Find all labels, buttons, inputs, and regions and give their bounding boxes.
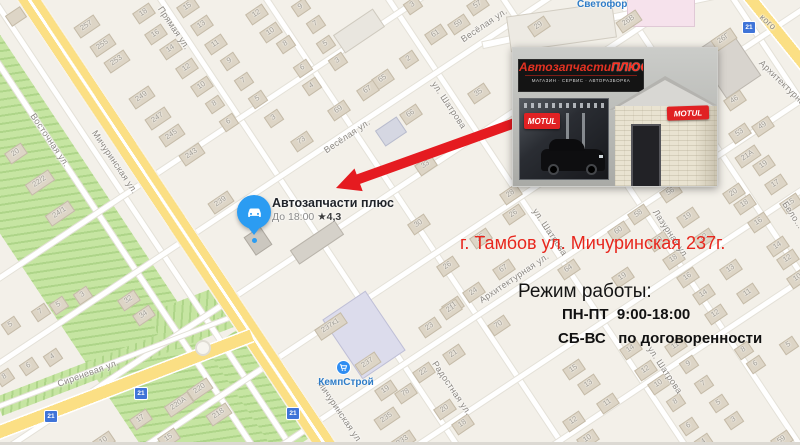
store-sign-title: АвтозапчастиПЛЮС <box>519 60 643 75</box>
brand-logos-row <box>524 103 603 108</box>
store-building <box>609 76 717 186</box>
car-wheel <box>548 164 559 175</box>
sign-title-accent: ПЛЮС <box>611 60 644 74</box>
car-photo <box>541 149 605 171</box>
sign-title-text: Автозапчасти <box>519 60 611 74</box>
car-wheel <box>586 164 597 175</box>
motul-wall-sign: MOTUL <box>667 105 709 120</box>
map-canvas[interactable]: 2572552532492472452432022/224/1181614121… <box>0 0 800 445</box>
address-annotation: г. Тамбов ул. Мичуринская 237г. <box>460 233 725 254</box>
schedule-title: Режим работы: <box>518 281 652 303</box>
schedule-weekdays: ПН-ПТ 9:00-18:00 <box>562 306 690 323</box>
schedule-weekend: СБ-ВС по договоренности <box>558 330 762 347</box>
billboard: MOTUL <box>519 98 609 180</box>
door <box>631 124 661 187</box>
motul-logo: MOTUL <box>524 113 560 129</box>
storefront-photo: АвтозапчастиПЛЮС МАГАЗИН · СЕРВИС · АВТО… <box>512 47 718 187</box>
